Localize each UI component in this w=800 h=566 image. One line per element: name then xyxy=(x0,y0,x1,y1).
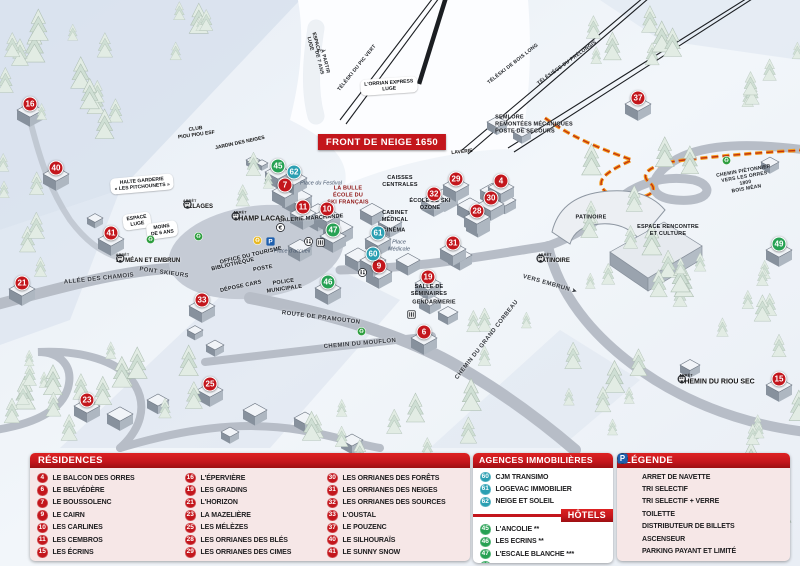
map-marker-61: 61 xyxy=(371,226,386,241)
svg-text:€: € xyxy=(278,225,283,231)
map-marker-21: 21 xyxy=(15,276,30,291)
residences-column-2: 16L'ÉPERVIÈRE19LES GRADINS21L'HORIZON23L… xyxy=(178,472,320,559)
wc-icon xyxy=(625,509,636,520)
legende-item-distributeur-de-billets: €DISTRIBUTEUR DE BILLETS xyxy=(617,521,790,533)
bus-stop-text: ARRÊTST MÉAN ET EMBRUN xyxy=(116,254,180,264)
map-marker-49: 49 xyxy=(772,237,787,252)
legend-marker-37: 37 xyxy=(327,523,338,534)
legend-item-16: 16L'ÉPERVIÈRE xyxy=(178,472,320,484)
legend-marker-28: 28 xyxy=(185,535,196,546)
map-marker-19: 19 xyxy=(421,270,436,285)
legend-item-47: 47L'ESCALE BLANCHE *** xyxy=(473,548,613,560)
asc-icon xyxy=(625,534,636,545)
map-marker-10: 10 xyxy=(320,202,335,217)
hotels-title: HÔTELS xyxy=(561,509,613,523)
bus-stop-text: ARRÊTCHEMIN DU RIOU SEC xyxy=(679,374,754,385)
svg-text:♻: ♻ xyxy=(359,328,364,335)
legende-label-distributeur-de-billets: DISTRIBUTEUR DE BILLETS xyxy=(642,523,735,530)
legende-label-parking-payant-et-limit: PARKING PAYANT ET LIMITÉ xyxy=(642,548,736,555)
residences-header: RÉSIDENCES xyxy=(30,453,470,468)
svg-text:♻: ♻ xyxy=(148,236,153,243)
map-label-salle-de-s-minaires: SALLE DE SÉMINAIRES xyxy=(411,284,447,298)
legende-item-toilette: TOILETTE xyxy=(617,508,790,520)
svg-text:♻: ♻ xyxy=(196,233,201,240)
map-marker-40: 40 xyxy=(49,161,64,176)
legend-label-l-horizon: L'HORIZON xyxy=(201,499,238,506)
bus-stop-st-m-an-et-embrun: ARRÊTST MÉAN ET EMBRUN xyxy=(116,254,182,264)
map-label-cabinet-m-dical: CABINET MÉDICAL xyxy=(382,210,408,224)
map-marker-37: 37 xyxy=(631,91,646,106)
map-marker-11: 11 xyxy=(296,200,311,215)
legend-marker-25: 25 xyxy=(185,523,196,534)
rec-g-icon: ♻ xyxy=(625,484,636,495)
map-marker-6: 6 xyxy=(417,325,432,340)
hotels-list: 45L'ANCOLIE **46LES ECRINS **47L'ESCALE … xyxy=(473,523,613,563)
legend-marker-49: 49 xyxy=(480,561,491,563)
map-label-cin-ma: CINÉMA xyxy=(383,228,406,235)
legend-marker-45: 45 xyxy=(480,524,491,535)
legende-item-ascenseur: ASCENSEUR xyxy=(617,533,790,545)
legende-item-arret-de-navette: ARRET DE NAVETTE xyxy=(617,471,790,483)
legend-marker-7: 7 xyxy=(37,498,48,509)
map-label-caisses-centrales: CAISSES CENTRALES xyxy=(382,175,417,189)
legend-marker-11: 11 xyxy=(37,535,48,546)
legend-item-49: 49LES TRAPPEURS ** xyxy=(473,560,613,563)
legend-label-les-ecrins: LES ECRINS ** xyxy=(496,538,544,545)
map-label-place-du-festival: Place du Festival xyxy=(300,181,342,188)
rec-y-icon: ♻ xyxy=(625,496,636,507)
legend-marker-32: 32 xyxy=(327,498,338,509)
legend-item-21: 21L'HORIZON xyxy=(178,497,320,509)
map-marker-46: 46 xyxy=(321,275,336,290)
legende-item-parking-payant-et-limit: PPARKING PAYANT ET LIMITÉ xyxy=(617,545,790,557)
svg-text:♻: ♻ xyxy=(255,237,260,244)
legend-item-31: 31LES ORRIANES DES NEIGES xyxy=(320,484,470,496)
map-marker-15: 15 xyxy=(772,372,787,387)
hotels-header: HÔTELS xyxy=(473,509,613,522)
legend-item-41: 41LE SUNNY SNOW xyxy=(320,546,470,558)
map-marker-28: 28 xyxy=(470,204,485,219)
agences-header: AGENCES IMMOBILIÈRES xyxy=(473,453,613,468)
legend-label-les-crins: LES ÉCRINS xyxy=(53,549,94,556)
legend-label-le-boussolenc: LE BOUSSOLENC xyxy=(53,499,112,506)
map-marker-30: 30 xyxy=(484,191,499,206)
legende-header: LÉGENDE xyxy=(617,453,790,468)
legend-label-l-pervi-re: L'ÉPERVIÈRE xyxy=(201,475,246,482)
map-marker-32: 32 xyxy=(427,187,442,202)
legend-label-les-m-l-zes: LES MÉLÈZES xyxy=(201,524,249,531)
legend-marker-61: 61 xyxy=(480,484,491,495)
legend-item-25: 25LES MÉLÈZES xyxy=(178,522,320,534)
bus-stop-champ-lacas: ARRÊTCHAMP LACAS xyxy=(231,211,285,222)
map-marker-47: 47 xyxy=(326,223,341,238)
bus-stop-chemin-du-riou-sec: ARRÊTCHEMIN DU RIOU SEC xyxy=(677,374,754,385)
map-marker-45: 45 xyxy=(271,159,286,174)
map-marker-62: 62 xyxy=(287,165,302,180)
legend-label-le-balcon-des-orres: LE BALCON DES ORRES xyxy=(53,475,135,482)
legend-label-les-orrianes-des-neiges: LES ORRIANES DES NEIGES xyxy=(343,487,438,494)
legend-marker-31: 31 xyxy=(327,485,338,496)
legend-item-9: 9LE CAIRN xyxy=(30,509,178,521)
residences-panel: RÉSIDENCES 4LE BALCON DES ORRES6LE BELVÉ… xyxy=(30,453,470,561)
legend-marker-33: 33 xyxy=(327,510,338,521)
legend-item-60: 60CJM TRANSIMO xyxy=(473,471,613,483)
legend-label-l-escale-blanche: L'ESCALE BLANCHE *** xyxy=(496,551,575,558)
legend-label-le-cairn: LE CAIRN xyxy=(53,512,85,519)
legend-marker-6: 6 xyxy=(37,485,48,496)
legende-item-tri-selectif-verre: ♻TRI SELECTIF + VERRE xyxy=(617,496,790,508)
map-label-place-d-accueil: Place d'accueil xyxy=(274,249,311,256)
legend-marker-41: 41 xyxy=(327,547,338,558)
legend-item-6: 6LE BELVÉDÈRE xyxy=(30,484,178,496)
legend-item-29: 29LES ORRIANES DES CIMES xyxy=(178,546,320,558)
legend-item-37: 37LE POUZENC xyxy=(320,522,470,534)
legend-marker-29: 29 xyxy=(185,547,196,558)
map-label-patinoire: PATINOIRE xyxy=(576,215,607,222)
agences-hotels-panel: AGENCES IMMOBILIÈRES 60CJM TRANSIMO61LOG… xyxy=(473,453,613,563)
legend-label-l-ancolie: L'ANCOLIE ** xyxy=(496,526,540,533)
legend-label-logevac-immobilier: LOGEVAC IMMOBILIER xyxy=(496,486,572,493)
legend-label-les-carlines: LES CARLINES xyxy=(53,524,103,531)
map-marker-60: 60 xyxy=(366,247,381,262)
map-label-gendarmerie: GENDARMERIE xyxy=(412,300,455,307)
legend-item-61: 61LOGEVAC IMMOBILIER xyxy=(473,483,613,495)
legend-label-le-sunny-snow: LE SUNNY SNOW xyxy=(343,549,401,556)
park-icon: P xyxy=(625,546,636,557)
residences-column-1: 4LE BALCON DES ORRES6LE BELVÉDÈRE7LE BOU… xyxy=(30,472,178,559)
legend-item-45: 45L'ANCOLIE ** xyxy=(473,523,613,535)
legende-panel: LÉGENDE ARRET DE NAVETTE♻TRI SELECTIF♻TR… xyxy=(617,453,790,561)
legend-item-4: 4LE BALCON DES ORRES xyxy=(30,472,178,484)
legend-marker-10: 10 xyxy=(37,523,48,534)
agences-list: 60CJM TRANSIMO61LOGEVAC IMMOBILIER62NEIG… xyxy=(473,468,613,508)
legend-marker-40: 40 xyxy=(327,535,338,546)
legend-label-l-oustal: L'OUSTAL xyxy=(343,512,376,519)
map-marker-16: 16 xyxy=(23,97,38,112)
svg-text:P: P xyxy=(620,454,625,463)
euro-icon: € xyxy=(625,521,636,532)
legend-item-19: 19LES GRADINS xyxy=(178,484,320,496)
legend-item-33: 33L'OUSTAL xyxy=(320,509,470,521)
legend-label-neige-et-soleil: NEIGE ET SOLEIL xyxy=(496,498,554,505)
legend-marker-4: 4 xyxy=(37,473,48,484)
map-label-espace-rencontre-et-culture: ESPACE RENCONTRE ET CULTURE xyxy=(637,224,699,238)
map-label-semlore-remont-es-m-caniques-pos: SEMLORE REMONTÉES MÉCANIQUES POSTE DE SE… xyxy=(495,115,573,136)
map-marker-33: 33 xyxy=(195,293,210,308)
map-label-la-bulle-cole-du-ski-fran-ais: LA BULLE ÉCOLE DU SKI FRANÇAIS xyxy=(327,186,369,207)
map-marker-25: 25 xyxy=(203,377,218,392)
legend-label-les-orrianes-des-bl-s: LES ORRIANES DES BLÉS xyxy=(201,537,288,544)
legend-marker-30: 30 xyxy=(327,473,338,484)
legend-label-cjm-transimo: CJM TRANSIMO xyxy=(496,474,549,481)
legend-label-les-cembros: LES CEMBROS xyxy=(53,537,103,544)
bus-icon xyxy=(625,472,636,483)
legend-marker-15: 15 xyxy=(37,547,48,558)
legend-item-28: 28LES ORRIANES DES BLÉS xyxy=(178,534,320,546)
svg-text:P: P xyxy=(268,239,273,246)
residences-column-3: 30LES ORRIANES DES FORÊTS31LES ORRIANES … xyxy=(320,472,470,559)
legend-item-40: 40LE SILHOURAÏS xyxy=(320,534,470,546)
bus-stop-villages: ARRÊTVILLAGES xyxy=(183,200,215,210)
map-marker-31: 31 xyxy=(446,236,461,251)
svg-text:♻: ♻ xyxy=(724,157,729,164)
legend-label-le-belv-d-re: LE BELVÉDÈRE xyxy=(53,487,105,494)
legende-item-tri-selectif: ♻TRI SELECTIF xyxy=(617,483,790,495)
front-de-neige-banner: FRONT DE NEIGE 1650 xyxy=(318,134,446,150)
legend-label-les-orrianes-des-sources: LES ORRIANES DES SOURCES xyxy=(343,499,446,506)
map-marker-4: 4 xyxy=(494,174,509,189)
legend-marker-19: 19 xyxy=(185,485,196,496)
bus-stop-name: CHEMIN DU RIOU SEC xyxy=(679,378,754,385)
legend-marker-47: 47 xyxy=(480,549,491,560)
legend-item-32: 32LES ORRIANES DES SOURCES xyxy=(320,497,470,509)
map-marker-41: 41 xyxy=(104,226,119,241)
legende-label-ascenseur: ASCENSEUR xyxy=(642,536,685,543)
legend-marker-46: 46 xyxy=(480,537,491,548)
residences-list: 4LE BALCON DES ORRES6LE BELVÉDÈRE7LE BOU… xyxy=(30,468,470,559)
legend-label-la-mazeli-re: LA MAZELIÈRE xyxy=(201,512,251,519)
legend-marker-23: 23 xyxy=(185,510,196,521)
legend-marker-9: 9 xyxy=(37,510,48,521)
legend-item-30: 30LES ORRIANES DES FORÊTS xyxy=(320,472,470,484)
map-marker-29: 29 xyxy=(449,172,464,187)
legend-item-62: 62NEIGE ET SOLEIL xyxy=(473,496,613,508)
map-marker-23: 23 xyxy=(80,393,95,408)
legende-label-tri-selectif-verre: TRI SELECTIF + VERRE xyxy=(642,498,719,505)
legende-label-toilette: TOILETTE xyxy=(642,511,675,518)
bus-stop-name: CHAMP LACAS xyxy=(233,215,285,222)
legend-marker-62: 62 xyxy=(480,497,491,508)
legend-item-15: 15LES ÉCRINS xyxy=(30,546,178,558)
legend-label-les-orrianes-des-for-ts: LES ORRIANES DES FORÊTS xyxy=(343,475,440,482)
legend-label-le-pouzenc: LE POUZENC xyxy=(343,524,387,531)
legende-list: ARRET DE NAVETTE♻TRI SELECTIF♻TRI SELECT… xyxy=(617,468,790,558)
legend-label-les-gradins: LES GRADINS xyxy=(201,487,248,494)
legend-marker-21: 21 xyxy=(185,498,196,509)
hotels-divider xyxy=(473,514,561,517)
legend-marker-60: 60 xyxy=(480,472,491,483)
resort-map-page: FRONT DE NEIGE 1650 L'ORRIAN EXPRESS LUG… xyxy=(0,0,800,566)
bus-stop-patinoire: ARRÊTPATINOIRE xyxy=(536,254,570,264)
legende-label-arret-de-navette: ARRET DE NAVETTE xyxy=(642,474,710,481)
map-label-place-m-dicale: Place Médicale xyxy=(388,239,410,252)
bus-stop-text: ARRÊTCHAMP LACAS xyxy=(233,211,285,222)
legende-label-tri-selectif: TRI SELECTIF xyxy=(642,486,688,493)
legend-label-les-orrianes-des-cimes: LES ORRIANES DES CIMES xyxy=(201,549,292,556)
legend-marker-16: 16 xyxy=(185,473,196,484)
legend-item-10: 10LES CARLINES xyxy=(30,522,178,534)
map-marker-7: 7 xyxy=(278,178,293,193)
bus-stop-name: ST MÉAN ET EMBRUN xyxy=(116,258,180,264)
legend-item-11: 11LES CEMBROS xyxy=(30,534,178,546)
legend-item-23: 23LA MAZELIÈRE xyxy=(178,509,320,521)
legend-label-le-silhoura-s: LE SILHOURAÏS xyxy=(343,537,396,544)
legend-item-7: 7LE BOUSSOLENC xyxy=(30,497,178,509)
legend-item-46: 46LES ECRINS ** xyxy=(473,536,613,548)
